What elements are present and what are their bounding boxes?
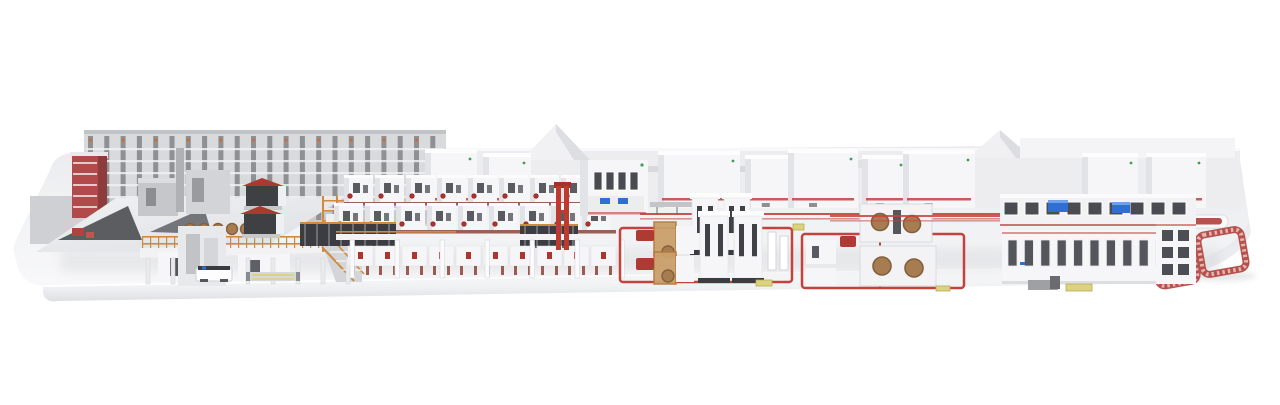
dry-module-top (530, 175, 559, 178)
control-screen-1-glare (1048, 200, 1068, 203)
cabinet-logo-green (640, 163, 643, 166)
mezz-column (171, 258, 175, 284)
dry-module-window-2 (539, 213, 544, 221)
dry-module-window-2 (353, 213, 358, 221)
dry-module-top (344, 175, 373, 178)
railing-post (166, 236, 167, 248)
hood-red-stripe (792, 198, 854, 201)
railing-post (150, 236, 151, 248)
dry-module-window-2 (446, 213, 451, 221)
dry-module-window-2 (394, 185, 399, 193)
dry-module-window (467, 211, 474, 221)
hood-top-cap (483, 153, 531, 157)
sled-stripe-1 (252, 274, 294, 276)
railing-post (174, 236, 175, 248)
rack-shelf-line (86, 172, 444, 174)
pallet-2 (793, 224, 804, 230)
red-rack-front (72, 156, 98, 218)
hood-logo-green (469, 158, 472, 161)
deck-splicer-1-slot (146, 188, 156, 206)
hood-logo-green (1198, 162, 1201, 165)
end-tower-panel (1178, 230, 1189, 241)
door-panel (1123, 240, 1132, 266)
red-pillar-1 (556, 186, 561, 250)
dry-module-facet (437, 177, 442, 204)
dry-module-window (436, 211, 443, 221)
dry-module-red-emblem (441, 194, 445, 198)
mezz-column (321, 258, 325, 284)
pallet-3 (936, 286, 950, 291)
red-rack-shelf (73, 184, 97, 186)
dry-module-facet (489, 205, 494, 232)
splicer-frame-2 (860, 246, 936, 286)
floor-module-leg (474, 266, 477, 275)
glass-mullion (304, 224, 306, 246)
cabinet-blue-label-1 (600, 198, 610, 204)
upper-window (1088, 202, 1102, 215)
dry-module-window (343, 211, 350, 221)
dry-walkway (336, 234, 622, 240)
door-panel (1041, 240, 1050, 266)
cabinet-blue-label-2 (618, 198, 628, 204)
red-pillar-2 (564, 186, 569, 250)
cabinet-door (618, 172, 626, 190)
dry-module-red-emblem (379, 194, 383, 198)
agv-wheel-1 (200, 279, 208, 282)
paper-roll-b (904, 216, 921, 233)
end-tower-stripe (1156, 224, 1196, 226)
hood-top-cap (425, 149, 477, 153)
dry-module-red-emblem (586, 222, 590, 226)
hood-top-cap (788, 149, 858, 153)
dry-module-top (396, 203, 425, 206)
deck-splicer-1 (138, 180, 178, 216)
red-agv-car-1 (636, 230, 654, 241)
paper-roll-d (905, 259, 923, 277)
tower-slot (752, 224, 757, 256)
glass-left-rail (300, 222, 396, 224)
hood-logo-green (523, 162, 526, 165)
dry-module-window-2 (384, 213, 389, 221)
dry-support-column (575, 240, 580, 278)
dry-module-top (334, 203, 363, 206)
rack-orange-marker (382, 139, 385, 142)
dry-module-window (570, 183, 577, 193)
railing-post (142, 236, 143, 248)
hood-top-cap (1082, 153, 1138, 157)
dry-module-facet (406, 177, 411, 204)
dry-module-facet (499, 177, 504, 204)
floor-module-leg (609, 266, 612, 275)
dry-module-red-emblem (493, 222, 497, 226)
floor-module-leg (420, 266, 423, 275)
red-rack-shelf (73, 162, 97, 164)
dry-module-red-emblem (534, 194, 538, 198)
rack-orange-marker (317, 139, 320, 142)
hood-logo-green (967, 159, 970, 162)
rack-orange-marker (285, 139, 288, 142)
dry-module-window (405, 211, 412, 221)
converting-line (1000, 194, 1196, 291)
loop-B-machine-1-slot (812, 246, 819, 258)
dry-module-window-2 (415, 213, 420, 221)
red-rack-shelf (73, 206, 97, 208)
agv-wheel-2 (220, 279, 228, 282)
floor-module-red-emblem (412, 252, 417, 259)
rack-orange-marker (350, 139, 353, 142)
dry-module-window-2 (570, 213, 575, 221)
splicer-tower (700, 216, 728, 278)
hood-vent (809, 203, 817, 207)
dry-module-top (499, 175, 528, 178)
tower-slot (729, 206, 734, 233)
dry-module-window (477, 183, 484, 193)
end-tower-panel (1162, 264, 1173, 275)
end-tower-panel (1178, 247, 1189, 258)
sled-cap-right (296, 272, 300, 281)
tower-base (698, 278, 730, 283)
hood-top-cap (862, 155, 908, 159)
stand-2 (780, 236, 788, 270)
door-panel (1139, 240, 1148, 266)
sled-stripe-2 (252, 278, 294, 280)
render-canvas (0, 0, 1280, 405)
dry-module-window-2 (518, 185, 523, 193)
dry-module-window (498, 211, 505, 221)
dry-module-facet (530, 177, 535, 204)
tower-slot (705, 224, 710, 256)
agv-robot (196, 266, 232, 282)
dry-module-top (468, 175, 497, 178)
loop-B-machine-2 (806, 268, 836, 286)
rack-orange-marker (415, 139, 418, 142)
dry-module-window-2 (456, 185, 461, 193)
dry-module-window (384, 183, 391, 193)
robot-roll-2 (662, 270, 674, 282)
dry-module-facet (396, 205, 401, 232)
splicer-frame-1-mast (893, 210, 901, 234)
end-tower-panel (1162, 247, 1173, 258)
dry-module-window-2 (477, 213, 482, 221)
dry-module-top (427, 203, 456, 206)
railing-post (286, 236, 287, 248)
glass-mullion (316, 224, 318, 246)
dry-module-window (446, 183, 453, 193)
hood-logo-green (850, 158, 853, 161)
cabinet-door (594, 172, 602, 190)
cabinet-side (580, 160, 588, 216)
robot-box-2 (676, 256, 694, 282)
paper-roll-c (873, 257, 891, 275)
loop-B-machine-1 (806, 240, 836, 264)
door-panel (1074, 240, 1083, 266)
splicer-tower (734, 216, 762, 278)
red-rack-shelf (73, 173, 97, 175)
hood-red-stripe (866, 198, 904, 201)
dry-module-facet (458, 205, 463, 232)
floor-module-leg (366, 266, 369, 275)
floor-module-red-emblem (358, 252, 363, 259)
pallet-1 (756, 280, 772, 286)
robot-box-1 (676, 226, 694, 254)
pallet-4 (1066, 284, 1092, 291)
hood-top-cap (1146, 153, 1206, 157)
floor-module-leg (379, 266, 382, 275)
pallet-sled (246, 272, 300, 281)
door-panel (1024, 240, 1033, 266)
hood-top-cap (658, 151, 740, 155)
rack-orange-marker (187, 139, 190, 142)
rack-orange-marker (122, 139, 125, 142)
floor-module-leg (433, 266, 436, 275)
upper-deck-cap (1000, 194, 1196, 198)
hood-logo-green (900, 164, 903, 167)
paper-roll (227, 224, 238, 235)
dry-support-column (440, 240, 445, 278)
floor-module-leg (568, 266, 571, 275)
sled-cap-left (246, 272, 250, 281)
red-box-2 (86, 232, 94, 238)
dry-support-column (530, 240, 535, 278)
dry-module-facet (344, 177, 349, 204)
dry-module-window (529, 211, 536, 221)
tower-slot (718, 224, 723, 256)
floor-module-red-emblem (466, 252, 471, 259)
hood-top-cap (903, 150, 975, 154)
stand-1 (768, 232, 776, 270)
dry-module-window (353, 183, 360, 193)
dry-module-top (365, 203, 394, 206)
rack-orange-marker (89, 139, 92, 142)
floor-module-red-emblem (493, 252, 498, 259)
floor-module-red-emblem (520, 252, 525, 259)
door-panel (1008, 240, 1017, 266)
dry-module-window (415, 183, 422, 193)
rack-orange-marker (154, 139, 157, 142)
floor-module-leg (460, 266, 463, 275)
dry-module-window (374, 211, 381, 221)
railing-post (294, 236, 295, 248)
dry-module-facet (375, 177, 380, 204)
floor-module-leg (501, 266, 504, 275)
floor-module-leg (582, 266, 585, 275)
dry-module-red-emblem (348, 194, 352, 198)
red-pillar-cross (556, 210, 569, 213)
single-facer-1-body (246, 186, 280, 206)
dry-module-window-2 (508, 213, 513, 221)
mezz-column (146, 258, 150, 284)
cabinet-red-stripe (588, 212, 646, 215)
dry-module-red-emblem (462, 222, 466, 226)
door-panel (1106, 240, 1115, 266)
railing-post (230, 236, 231, 248)
control-screen-2-glare (1112, 202, 1130, 205)
dry-support-column (485, 240, 490, 278)
dry-module-window-2 (363, 185, 368, 193)
dry-support-column (350, 240, 355, 278)
upper-window (1004, 202, 1018, 215)
agv-screen (202, 267, 206, 270)
lower-machine-blue-dot (1020, 262, 1025, 265)
cabinet-lower-band (588, 196, 644, 212)
glass-mullion (328, 224, 330, 246)
glass-right-rail (520, 224, 578, 226)
upper-window (1151, 202, 1165, 215)
dry-module-window-2 (425, 185, 430, 193)
deck-splicer-2-slot (192, 178, 204, 202)
floor-module-red-emblem (385, 252, 390, 259)
floor-module-red-emblem (547, 252, 552, 259)
floor-module-leg (541, 266, 544, 275)
dry-end-cabinet (580, 160, 648, 216)
dry-module-top (489, 203, 518, 206)
end-tower-panel (1162, 230, 1173, 241)
rack-orange-marker (252, 139, 255, 142)
upper-window (1025, 202, 1039, 215)
red-box-1 (72, 228, 84, 236)
dry-walkway-rail (336, 231, 456, 233)
production-line-render (0, 0, 1280, 405)
dry-module-facet (427, 205, 432, 232)
single-facer-2-base (242, 234, 280, 238)
pallet-truck-cab (1050, 276, 1060, 289)
door-panel (1090, 240, 1099, 266)
red-rack-shelf (73, 195, 97, 197)
floor-module-leg (555, 266, 558, 275)
upper-window (1130, 202, 1144, 215)
dry-module-red-emblem (400, 222, 404, 226)
railing-post (238, 236, 239, 248)
dry-module-top (458, 203, 487, 206)
dry-support-column (395, 240, 400, 278)
dry-module-red-emblem (431, 222, 435, 226)
single-facer-2-side (276, 214, 284, 234)
deck-splicer-1-top (138, 178, 178, 183)
single-facer-2-body (244, 214, 278, 234)
dry-module-top (520, 203, 549, 206)
upper-window (1067, 202, 1081, 215)
cabinet-door (606, 172, 614, 190)
hood-logo-green (1130, 162, 1133, 165)
dry-module-window-2 (549, 185, 554, 193)
rack-orange-marker (219, 139, 222, 142)
dry-module-window (539, 183, 546, 193)
single-facer-1-side (278, 186, 286, 206)
tower-slot (739, 224, 744, 256)
dry-module-window (508, 183, 515, 193)
dry-module-facet (468, 177, 473, 204)
hood-vent (762, 203, 770, 207)
dry-module-red-emblem (410, 194, 414, 198)
floor-module-leg (595, 266, 598, 275)
red-agv-car-2 (636, 258, 654, 270)
cabinet-door (630, 172, 638, 190)
rack-shelf-line (86, 160, 444, 162)
red-agv-car-3 (840, 236, 856, 247)
end-tower-panel (1178, 264, 1189, 275)
dry-module-top (406, 175, 435, 178)
crane-mast (176, 148, 184, 212)
door-panel (1057, 240, 1066, 266)
rack-shelf-line (86, 148, 444, 150)
floor-module-red-emblem (601, 252, 606, 259)
dry-module-top (437, 175, 466, 178)
floor-module-leg (406, 266, 409, 275)
dry-module-top (375, 175, 404, 178)
right-end-tower (1156, 222, 1196, 284)
dry-module-window-2 (487, 185, 492, 193)
dry-module-red-emblem (472, 194, 476, 198)
floor-module-leg (447, 266, 450, 275)
upper-window (1172, 202, 1186, 215)
hood-red-stripe (907, 198, 971, 201)
hood-logo-green (732, 160, 735, 163)
dry-module-red-emblem (503, 194, 507, 198)
railing-post (158, 236, 159, 248)
floor-module-leg (514, 266, 517, 275)
